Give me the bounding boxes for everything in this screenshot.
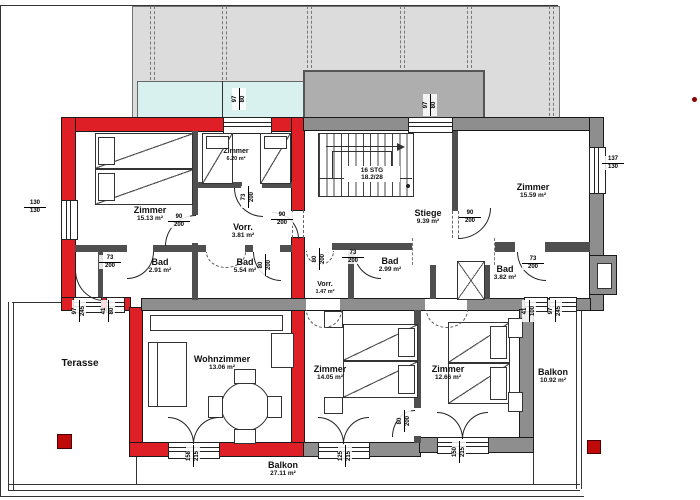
door-arc xyxy=(127,252,154,279)
room-area: 9.39 m² xyxy=(388,218,468,226)
roof-upper-structure xyxy=(303,70,485,122)
room-label-zimmer-1559: Zimmer15.59 m² xyxy=(493,182,573,200)
bed xyxy=(95,133,193,169)
wall-red-livingroom-left xyxy=(130,308,142,456)
pillow xyxy=(206,136,229,149)
room-label-vorr-147: Vorr.1.47 m² xyxy=(295,281,355,295)
sofa-backrest xyxy=(157,343,158,406)
stair-step-count: 16 STG xyxy=(346,167,398,174)
dining-table xyxy=(221,382,270,431)
wall-int xyxy=(153,245,192,252)
wall-int xyxy=(493,242,515,252)
wall-int xyxy=(452,131,458,211)
wall-int xyxy=(332,243,412,250)
window xyxy=(61,200,78,240)
stair-walkline-dot xyxy=(406,184,410,188)
frame-left-line xyxy=(0,5,1,497)
chimney-niche-inner xyxy=(597,263,612,289)
staircase-walk-line xyxy=(326,146,398,147)
dimension-terr-win-a: 97245 xyxy=(72,300,86,322)
room-area: 3.81 m² xyxy=(203,232,283,240)
bed xyxy=(343,361,418,398)
stair-step-ratio: 18.2/28 xyxy=(346,174,398,181)
door-arc xyxy=(193,417,219,444)
room-area: 13.06 m² xyxy=(172,364,272,372)
wall-int xyxy=(192,252,198,300)
dimension-door-zimmer1405: 125215 xyxy=(338,445,352,467)
dimension-door-zimmer15: 90200 xyxy=(168,214,190,228)
opening xyxy=(425,299,467,310)
wall-int xyxy=(545,242,590,252)
dimension-skylight-right: 9780 xyxy=(423,94,437,116)
sideboard xyxy=(150,315,283,331)
door-arc xyxy=(462,412,488,439)
dimension-skylight-left: 9780 xyxy=(232,88,246,110)
terrace-top-line xyxy=(12,302,62,303)
door-arc xyxy=(318,417,344,444)
room-name: Wohnzimmer xyxy=(172,354,272,364)
frame-bottom-line xyxy=(0,496,584,497)
room-label-terasse: Terasse xyxy=(40,359,120,369)
door-arc xyxy=(437,412,463,439)
dimension-door-zimmer620: 73200 xyxy=(241,186,255,208)
wall-gray-top-right xyxy=(304,118,603,130)
dimension-win-right: 137130 xyxy=(602,156,624,170)
bed xyxy=(343,324,418,361)
pillow xyxy=(398,328,415,357)
door-arc xyxy=(168,417,194,444)
room-area: 1.47 m² xyxy=(295,289,355,295)
pillow xyxy=(98,173,115,201)
roof-joint-line xyxy=(150,6,155,80)
room-area: 15.59 m² xyxy=(493,192,573,200)
bed xyxy=(260,133,291,184)
pillow xyxy=(264,136,287,149)
dimension-door-vorr147: 80200 xyxy=(312,248,326,270)
chair xyxy=(234,429,256,444)
dimension-win-left: 130130 xyxy=(24,200,46,214)
nightstand xyxy=(508,392,523,412)
dimension-door-wohnzimmer: 158215 xyxy=(186,445,200,467)
entry-opening-dashed xyxy=(303,210,304,238)
dimension-balk-win-a: 41100 xyxy=(522,300,536,322)
dimension-door-entry-right: 90200 xyxy=(459,210,481,224)
roof-joint-line xyxy=(222,6,227,80)
balcony-railing-right xyxy=(576,302,582,489)
bed xyxy=(202,133,233,184)
wall-int xyxy=(280,245,292,252)
bed xyxy=(448,363,510,404)
red-marker-dot xyxy=(692,97,697,102)
room-label-balkon-2711: Balkon27.11 m² xyxy=(243,460,323,478)
wall-int xyxy=(414,436,421,443)
shower-tray xyxy=(457,261,485,300)
red-marker-square xyxy=(587,440,601,454)
nightstand xyxy=(324,397,343,414)
stair-direction-arrow xyxy=(397,143,405,151)
wall-red-divider-upper xyxy=(292,118,304,210)
skylight-divider xyxy=(222,81,223,118)
opening xyxy=(306,299,340,310)
balcony-divider-right xyxy=(533,452,534,484)
dimension-terr-win-b: 4180 xyxy=(101,300,115,322)
chair xyxy=(267,396,282,418)
pillow xyxy=(490,326,507,359)
room-name: Terasse xyxy=(40,359,120,369)
window xyxy=(223,117,272,134)
window xyxy=(408,117,453,133)
window xyxy=(589,147,606,194)
entry-opening-dashed xyxy=(452,211,453,238)
balcony-railing-bottom xyxy=(8,484,580,491)
wall-int xyxy=(245,245,253,252)
roof-joint-line xyxy=(400,6,405,68)
opening-arc-dashed xyxy=(206,252,246,268)
wall-int xyxy=(75,245,127,252)
dimension-door-bad382: 73200 xyxy=(522,256,544,270)
nightstand xyxy=(508,318,523,338)
dimension-door-bad291: 73200 xyxy=(99,255,121,269)
pillow xyxy=(398,365,415,394)
chair xyxy=(208,396,223,418)
pillow xyxy=(98,137,115,165)
dimension-door-bedrooms: 80200 xyxy=(397,410,411,432)
pillow xyxy=(490,367,507,400)
sofa xyxy=(148,342,187,407)
bed xyxy=(448,322,510,363)
stair-annotation: 16 STG 18.2/28 xyxy=(344,166,400,182)
dimension-balk-win-b: 97245 xyxy=(548,300,562,322)
terrace-railing-left xyxy=(8,302,14,490)
dimension-door-bad554: 80200 xyxy=(258,254,272,276)
floor-plan-canvas: 16 STG 18.2/28 Zimmer15.13 m²Zimmer6. xyxy=(0,0,700,500)
wall-int xyxy=(198,245,206,252)
red-marker-square xyxy=(57,434,72,449)
room-label-wohnzimmer: Wohnzimmer13.06 m² xyxy=(172,354,272,372)
dimension-door-zimmer1266: 150215 xyxy=(452,441,466,463)
roof-joint-line xyxy=(307,6,312,68)
dimension-door-vorr381: 90200 xyxy=(271,212,293,226)
room-name: Vorr. xyxy=(295,281,355,289)
roof-joint-line xyxy=(549,6,554,116)
room-name: Zimmer xyxy=(493,182,573,192)
dimension-door-bad299: 73200 xyxy=(342,250,364,264)
terrace-balcony-divider xyxy=(136,456,137,484)
door-arc xyxy=(343,417,369,444)
room-area: 27.11 m² xyxy=(243,470,323,478)
cabinet xyxy=(271,333,294,368)
roof-joint-line xyxy=(467,6,472,68)
room-name: Balkon xyxy=(243,460,323,470)
bed xyxy=(95,169,193,205)
chair xyxy=(234,369,256,384)
skylight-band xyxy=(137,81,305,120)
